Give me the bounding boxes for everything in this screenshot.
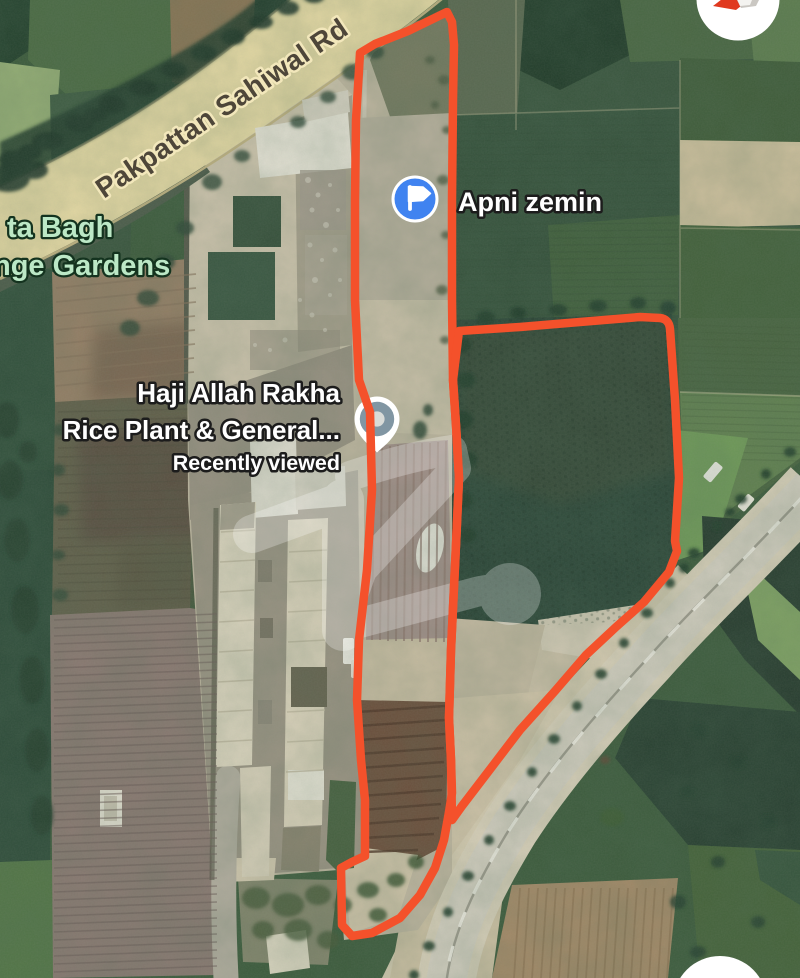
svg-text:nge Gardens: nge Gardens (0, 250, 170, 282)
svg-text:Apni zemin: Apni zemin (458, 187, 602, 217)
svg-text:Haji Allah Rakha: Haji Allah Rakha (137, 378, 340, 408)
svg-text:Rice Plant & General...: Rice Plant & General... (63, 415, 340, 445)
svg-text:Recently viewed: Recently viewed (173, 451, 340, 475)
svg-text:ta Bagh: ta Bagh (7, 212, 113, 244)
